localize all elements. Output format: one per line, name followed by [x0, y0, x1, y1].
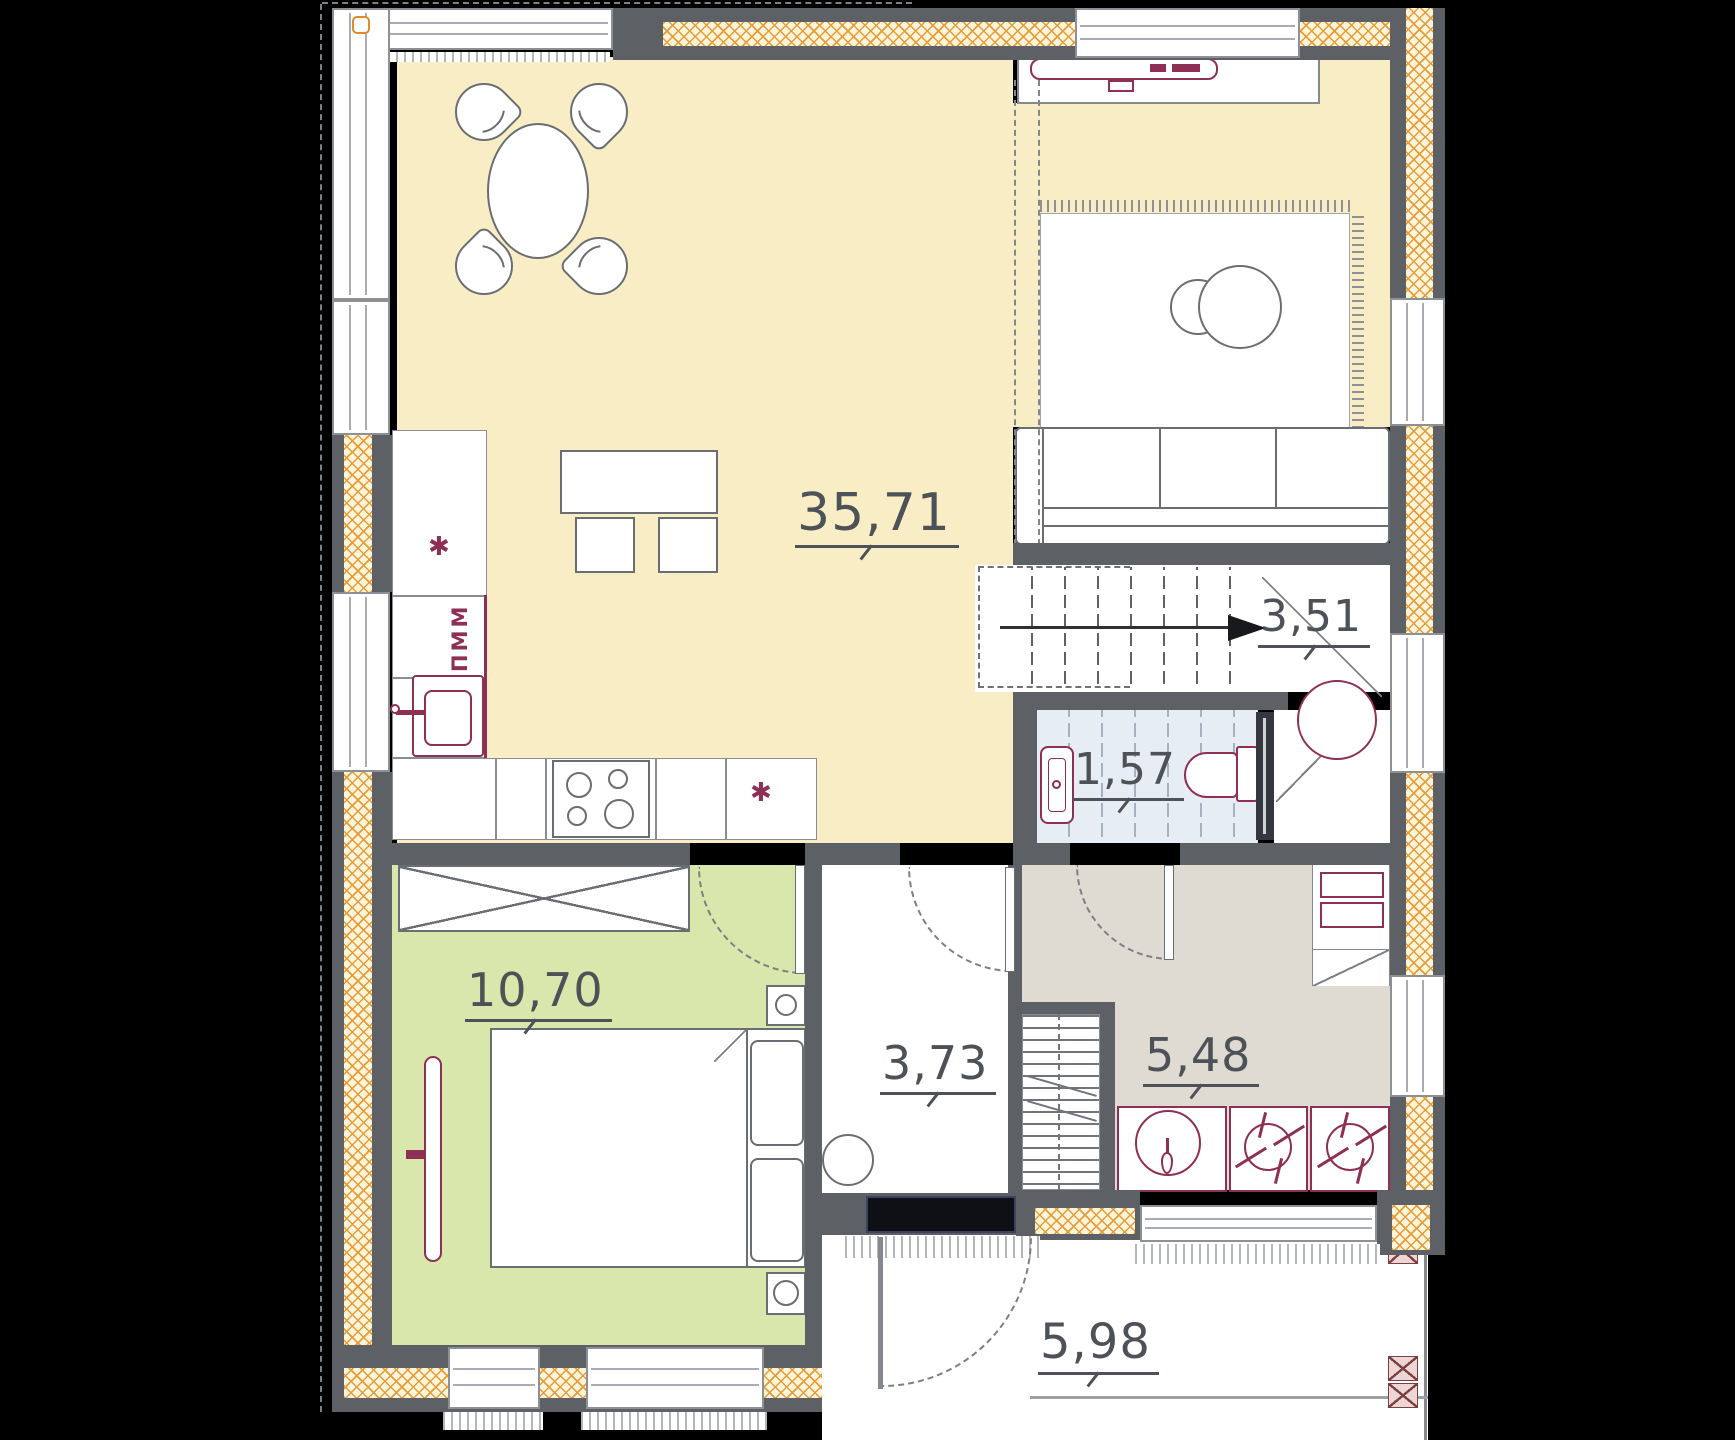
- wall: [1013, 710, 1037, 843]
- kitchen-island: [575, 517, 635, 573]
- wall: [1022, 1002, 1115, 1014]
- counter-divider: [392, 595, 487, 597]
- dishwasher-label: ПММ: [448, 606, 486, 672]
- toilet-bowl: [1184, 752, 1238, 798]
- window-sill-ticks: [443, 1412, 543, 1430]
- entry-steps-centerline: [1058, 1014, 1060, 1190]
- wall: [332, 435, 344, 592]
- room-living-kitchen: [1320, 56, 1390, 103]
- wall: [613, 8, 1445, 22]
- hob-mark: ✱: [750, 778, 772, 808]
- area-label-living: 35,71: [795, 487, 959, 548]
- door-leaf: [878, 1237, 883, 1389]
- wall: [805, 843, 900, 865]
- window: [332, 8, 390, 300]
- toilet-tank: [1236, 746, 1258, 802]
- sofa: [1015, 427, 1390, 545]
- wall: [805, 865, 822, 1412]
- overhang-dashed-line: [322, 2, 912, 4]
- washing-machine-symbol: [1229, 1106, 1308, 1192]
- tv-bracket-bedroom: [406, 1150, 426, 1159]
- cabinet-linen: [1320, 872, 1384, 898]
- hob-mark: ✱: [428, 532, 450, 562]
- area-label-bath: 1,57: [1072, 748, 1184, 801]
- tv-detail: [1172, 64, 1200, 72]
- area-label-bedroom: 10,70: [465, 967, 612, 1022]
- wall-insulation: [344, 772, 372, 1398]
- porch-step-line: [1030, 1396, 1428, 1399]
- sofa-back-line: [1042, 525, 1388, 527]
- kitchen-faucet-handle: [390, 704, 400, 714]
- floor-plan-canvas: ✱ ПММ ✱: [0, 0, 1735, 1440]
- window: [332, 592, 390, 772]
- kitchen-faucet: [396, 710, 424, 715]
- sofa-cushion-line: [1159, 429, 1161, 507]
- room-living-kitchen: [1013, 213, 1040, 427]
- area-label-hall: 3,73: [880, 1040, 996, 1095]
- bed-blanket-line: [746, 1030, 748, 1266]
- bathroom-door: [1256, 712, 1274, 840]
- stool-symbol: [822, 1134, 874, 1186]
- hob-burner: [604, 799, 634, 829]
- window: [1390, 633, 1445, 773]
- corner-marker: [352, 16, 370, 34]
- wall-insulation: [1035, 1208, 1135, 1234]
- nightstand-lamp: [773, 1280, 799, 1306]
- counter-divider: [725, 758, 727, 840]
- wall: [1013, 692, 1288, 710]
- water-heater-symbol: [1297, 680, 1377, 760]
- wall: [332, 772, 344, 1412]
- wall: [372, 435, 392, 592]
- tv-detail: [1150, 64, 1166, 72]
- wardrobe: [398, 865, 690, 932]
- counter-divider: [655, 758, 657, 840]
- wall-insulation: [1392, 1205, 1430, 1250]
- porch-post: [1388, 1356, 1418, 1381]
- window: [332, 300, 390, 435]
- window-sill-ticks: [581, 1412, 767, 1430]
- bathroom-door-line: [1263, 718, 1266, 834]
- wall: [1180, 843, 1390, 865]
- room-living-kitchen: [1013, 103, 1390, 213]
- counter-divider: [545, 758, 547, 840]
- washbasin-drain: [1052, 780, 1061, 789]
- area-label-porch: 5,98: [1038, 1318, 1159, 1375]
- porch-edge-line: [1424, 1237, 1427, 1440]
- washing-machine-drum: [1326, 1123, 1374, 1171]
- stair-void-outline: [978, 566, 1130, 688]
- overhang-dashed-line: [320, 4, 322, 1412]
- washing-machine-drum: [1244, 1123, 1292, 1171]
- area-label-stairs: 3,51: [1258, 595, 1370, 648]
- wall: [372, 772, 392, 1345]
- hob-symbol: [552, 760, 650, 838]
- rug-fringe: [1352, 213, 1364, 428]
- cabinet-linen: [1320, 902, 1384, 928]
- window: [1075, 8, 1300, 58]
- tv-symbol-bedroom: [424, 1056, 442, 1262]
- wall: [390, 843, 690, 865]
- window-sill-ticks: [1135, 1244, 1380, 1264]
- hob-burner: [567, 806, 587, 826]
- hob-burner: [566, 772, 592, 798]
- coffee-table-symbol: [1198, 265, 1282, 349]
- hob-burner: [608, 769, 628, 789]
- window: [448, 1347, 540, 1409]
- pillow: [750, 1040, 804, 1146]
- cabinet-fold: [1312, 950, 1390, 986]
- wall: [1013, 543, 1390, 565]
- wall-insulation: [344, 435, 372, 592]
- counter-divider: [495, 758, 497, 840]
- washing-machine-symbol: [1310, 1106, 1390, 1192]
- tv-bracket: [1108, 80, 1134, 92]
- sofa-back-line: [1042, 507, 1388, 509]
- door-leaf: [1005, 867, 1015, 972]
- wall: [1100, 1014, 1115, 1190]
- floor-opening-dashed-line: [1014, 80, 1016, 545]
- entrance-door: [866, 1196, 1016, 1233]
- kitchen-sink-bowl: [424, 690, 472, 746]
- wall: [613, 8, 663, 60]
- door-leaf: [1164, 865, 1174, 960]
- dining-table: [487, 123, 589, 259]
- rug-fringe: [1040, 200, 1350, 212]
- kitchen-island: [560, 450, 718, 514]
- window: [586, 1347, 764, 1409]
- window: [1390, 975, 1445, 1097]
- wall: [613, 46, 1445, 60]
- door-leaf: [795, 865, 805, 974]
- wall: [1013, 843, 1070, 865]
- wall-insulation: [613, 22, 1445, 46]
- window: [1390, 298, 1445, 426]
- sofa-cushion-line: [1275, 429, 1277, 507]
- bed-fold-corner: [714, 1030, 746, 1062]
- pillow: [750, 1158, 804, 1262]
- kitchen-island: [658, 517, 718, 573]
- floor-opening-dashed-line: [1038, 80, 1040, 545]
- window: [1140, 1205, 1377, 1242]
- nightstand-lamp: [775, 994, 797, 1016]
- wall: [332, 1345, 392, 1368]
- area-label-utility: 5,48: [1143, 1032, 1259, 1087]
- porch-post: [1388, 1383, 1418, 1408]
